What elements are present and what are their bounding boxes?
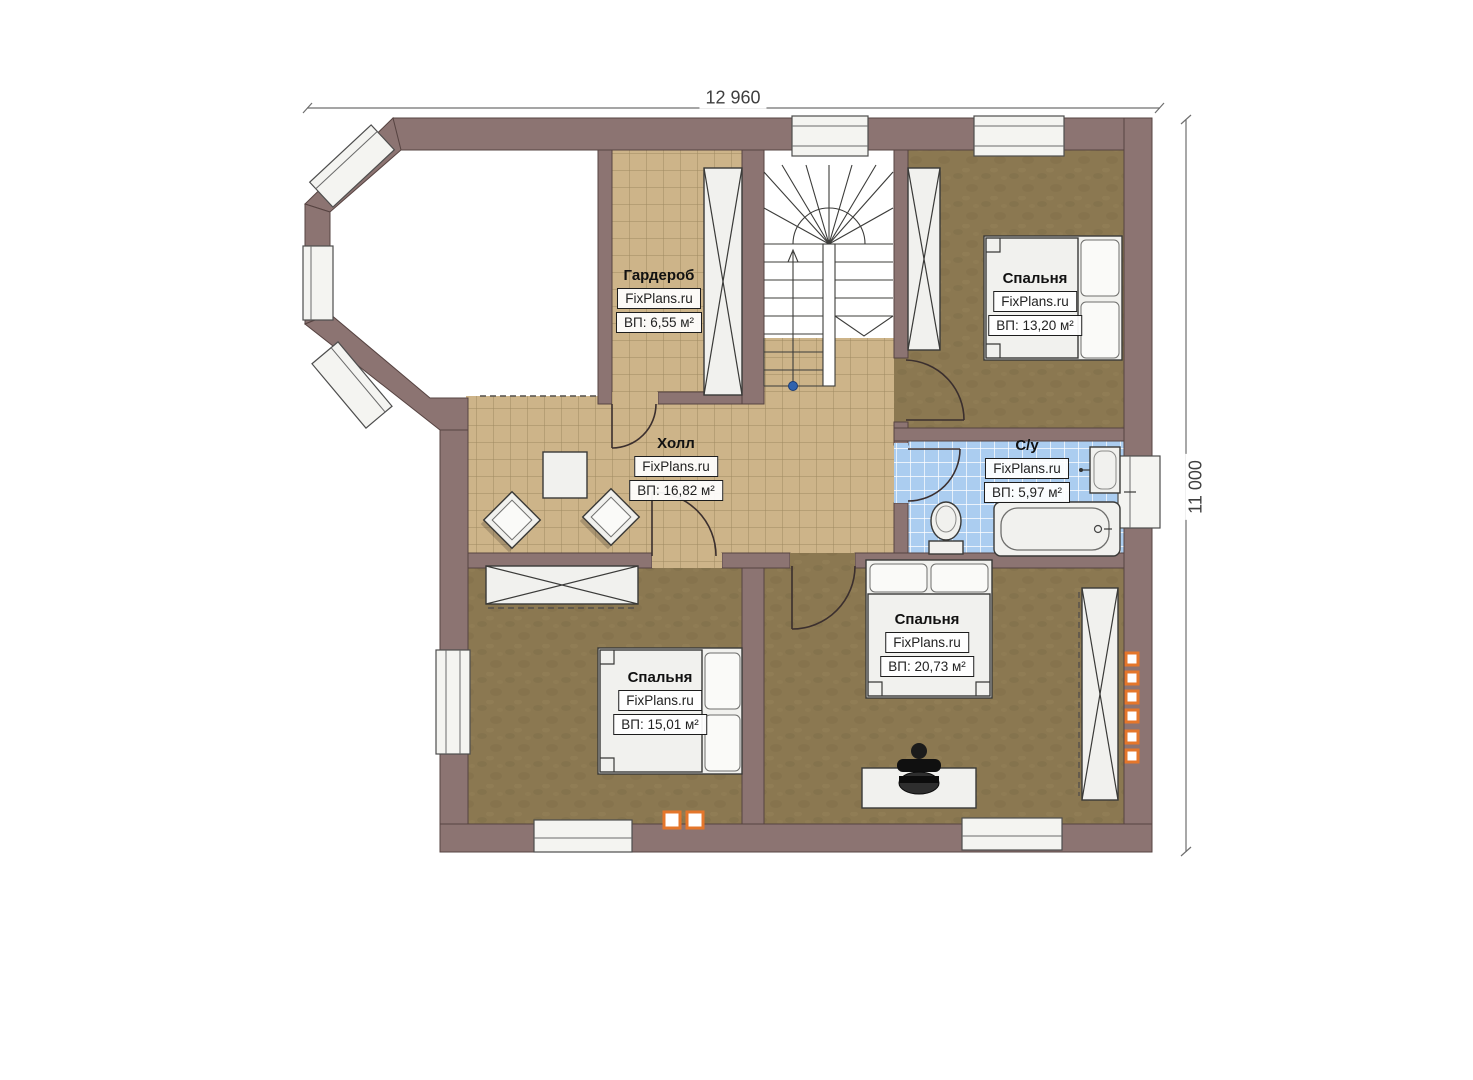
room-name: Спальня (895, 611, 960, 629)
stair-start-dot (789, 382, 798, 391)
toilet (929, 502, 963, 554)
window-top-1 (792, 116, 868, 156)
window-bottom-1 (534, 820, 632, 852)
window-top-2 (974, 116, 1064, 156)
room-label-bedroom-bl: Спальня FixPlans.ru ВП: 15,01 м² (613, 669, 707, 735)
room-label-bedroom-bm: Спальня FixPlans.ru ВП: 20,73 м² (880, 611, 974, 677)
closet-bedroom-bm-symbol (1079, 588, 1118, 800)
room-label-bedroom-tr: Спальня FixPlans.ru ВП: 13,20 м² (988, 270, 1082, 336)
room-name: Спальня (628, 669, 693, 687)
bathtub (994, 502, 1120, 556)
area-box: ВП: 15,01 м² (613, 714, 707, 735)
area-box: ВП: 16,82 м² (629, 480, 723, 501)
room-name: Гардероб (624, 267, 695, 285)
brand-box: FixPlans.ru (885, 632, 969, 653)
room-label-bathroom: С/у FixPlans.ru ВП: 5,97 м² (984, 437, 1070, 503)
brand-box: FixPlans.ru (617, 288, 701, 309)
window-left (436, 650, 470, 754)
floor-plan-page: 12 960 11 000 Гардероб FixPlans.ru ВП: 6… (0, 0, 1473, 1080)
closet-bedroom-bl-symbol (486, 566, 638, 608)
room-name: Спальня (1003, 270, 1068, 288)
window-bathroom (1118, 456, 1160, 528)
room-label-hall: Холл FixPlans.ru ВП: 16,82 м² (629, 435, 723, 501)
window-bottom-2 (962, 818, 1062, 850)
dimension-width: 12 960 (699, 88, 766, 109)
brand-box: FixPlans.ru (618, 690, 702, 711)
hall-table (543, 452, 587, 498)
room-name: С/у (1015, 437, 1038, 455)
window-bay-middle (303, 246, 333, 320)
room-label-wardrobe: Гардероб FixPlans.ru ВП: 6,55 м² (616, 267, 702, 333)
area-box: ВП: 5,97 м² (984, 482, 1070, 503)
closet-stairs-symbol (908, 168, 940, 350)
closet-wardrobe-symbol (704, 168, 742, 395)
floor-plan-drawing (0, 0, 1473, 1080)
dimension-height: 11 000 (1186, 454, 1207, 520)
brand-box: FixPlans.ru (634, 456, 718, 477)
brand-box: FixPlans.ru (985, 458, 1069, 479)
area-box: ВП: 6,55 м² (616, 312, 702, 333)
brand-box: FixPlans.ru (993, 291, 1077, 312)
area-box: ВП: 13,20 м² (988, 315, 1082, 336)
area-box: ВП: 20,73 м² (880, 656, 974, 677)
room-name: Холл (657, 435, 695, 453)
